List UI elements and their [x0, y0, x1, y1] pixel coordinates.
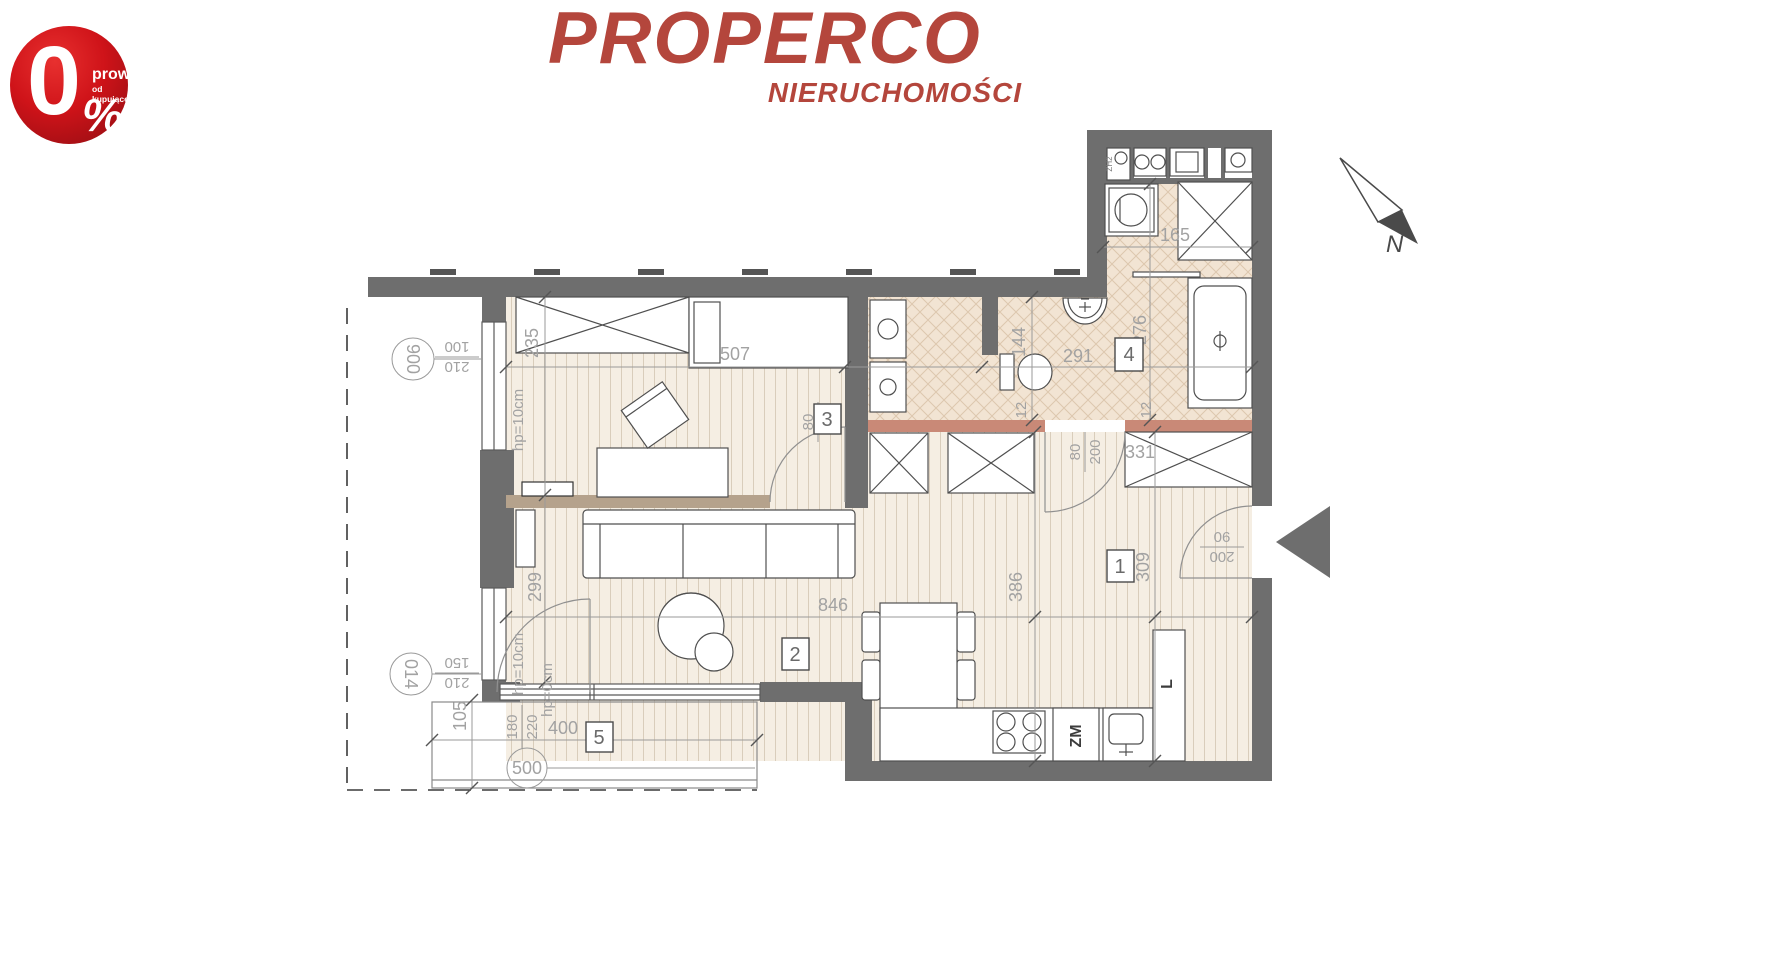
room-label-2: 2	[782, 638, 809, 670]
hob-icon	[993, 711, 1045, 753]
bath-shelf-icon	[1133, 272, 1200, 277]
room-label-5: 5	[586, 722, 613, 752]
window1-height: 210	[444, 358, 469, 375]
wall-east-upper	[1252, 130, 1272, 506]
wall-left-a	[482, 277, 506, 322]
floor-plan: ZM L	[0, 0, 1776, 970]
entry-door-height: 200	[1209, 548, 1234, 565]
room2-number: 2	[789, 644, 800, 666]
north-arrow-icon: N	[1340, 158, 1418, 258]
room4-number: 4	[1123, 344, 1134, 366]
dim-507: 507	[720, 344, 750, 364]
entrance-arrow-icon	[1276, 506, 1330, 578]
toilet-icon	[1000, 354, 1052, 390]
room1-number: 1	[1114, 556, 1125, 578]
dim-331: 331	[1125, 442, 1155, 462]
wall-annex-top	[1087, 130, 1272, 148]
hp-label-2: hp=10cm	[510, 633, 527, 695]
hall-wardrobe-2-icon	[948, 433, 1034, 493]
sofa-icon	[583, 510, 855, 578]
annex-unit-label: ZH2	[1105, 156, 1114, 172]
dim-12a: 12	[1013, 402, 1030, 419]
wall-east-lower	[1252, 578, 1272, 781]
hp-label-1: hp=10cm	[510, 389, 527, 451]
kitchen-sink-icon	[1103, 708, 1153, 761]
balcony-door-width: 180	[504, 714, 521, 739]
hall-wardrobe-1-icon	[870, 433, 928, 493]
hp-label-3: hp=0cm	[539, 663, 556, 717]
north-label: N	[1386, 231, 1404, 258]
dim-291: 291	[1063, 346, 1093, 366]
dim-309: 309	[1133, 552, 1153, 582]
wall-bottom-left-b	[760, 682, 868, 702]
lintel-bath-left	[868, 420, 1045, 432]
entry-door-width: 90	[1214, 528, 1231, 545]
window-living	[482, 588, 506, 680]
wall-annex-left	[1087, 130, 1107, 297]
window2-height: 210	[444, 674, 469, 691]
room-label-3: 3	[814, 404, 841, 434]
desk-icon	[597, 448, 728, 497]
fridge-icon	[1153, 630, 1185, 761]
wall-bottom-right	[845, 761, 1272, 781]
room-label-1: 1	[1107, 550, 1134, 582]
window2-parapet: 150	[444, 654, 469, 671]
window-room3	[482, 322, 506, 450]
dim-235: 235	[522, 328, 542, 358]
niche-cabinets-icon	[870, 300, 906, 412]
room5-number: 5	[593, 727, 604, 749]
room-label-4: 4	[1115, 338, 1143, 371]
dim-165: 165	[1160, 225, 1190, 245]
bath-door-width: 80	[1067, 444, 1084, 461]
window1-ref: 900	[403, 344, 423, 374]
side-table-icon	[516, 510, 535, 567]
wall-left-pillar	[480, 450, 514, 588]
dim-105: 105	[450, 701, 470, 731]
annex-wardrobe-icon	[1178, 182, 1252, 260]
dim-299: 299	[525, 572, 545, 602]
balcony-door-height: 220	[524, 714, 541, 739]
bathtub-icon	[1188, 278, 1252, 408]
dim-144: 144	[1009, 327, 1029, 357]
window1-size: 210 100	[435, 338, 479, 375]
wall-top	[368, 277, 1103, 297]
dishwasher-label: ZM	[1068, 724, 1085, 747]
window2-size: 210 150	[435, 654, 479, 691]
dim-386: 386	[1006, 572, 1026, 602]
page: 0 % prowizji od kupującego PROPERCO NIER…	[0, 0, 1776, 970]
dim-846: 846	[818, 595, 848, 615]
wall-bath-left	[982, 297, 998, 355]
dim-12b: 12	[1138, 402, 1155, 419]
window1-parapet: 100	[444, 338, 469, 355]
fridge-label: L	[1159, 679, 1176, 689]
tv-cabinet-icon	[522, 482, 573, 496]
bed-icon	[689, 297, 848, 368]
dim-400: 400	[548, 718, 578, 738]
annex-fixtures-icon	[1107, 148, 1252, 180]
room3-number: 3	[821, 409, 832, 431]
window2-ref: 014	[401, 659, 421, 689]
balcony-ref: 500	[512, 758, 542, 778]
bath-door-height: 200	[1087, 439, 1104, 464]
room3-door-gap-floor	[770, 495, 845, 508]
